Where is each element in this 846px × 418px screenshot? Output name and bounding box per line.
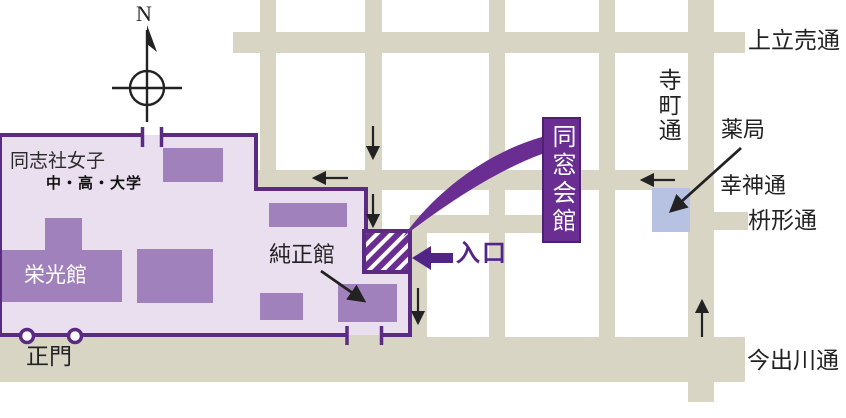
campus-name-label: 同志社女子 <box>10 152 105 172</box>
dousoukaikan-label: 同窓会館 <box>544 124 579 236</box>
street-teramachi-v <box>688 0 714 402</box>
street-v2 <box>365 0 382 233</box>
street-v1 <box>260 0 276 190</box>
building <box>163 148 223 182</box>
compass-n-label: N <box>136 2 152 25</box>
compass <box>112 25 182 122</box>
entrance-marker <box>364 231 410 272</box>
street-v4 <box>599 0 615 338</box>
street-label-teramachi: 寺町通 <box>655 68 679 143</box>
campus-access-map: 同窓会館 N 上立売通 寺町通 薬局 幸神通 枡形通 今出川通 同志社女子 中・… <box>0 0 846 418</box>
building <box>269 203 347 227</box>
pharmacy-label: 薬局 <box>721 118 765 141</box>
junseikan-pointer-arrow <box>321 271 364 301</box>
building-eikokan <box>45 218 82 252</box>
street-imadegawa-h <box>0 337 745 382</box>
street-label-masugata: 枡形通 <box>748 209 817 233</box>
building-junseikan <box>338 284 397 322</box>
compass-needle <box>147 25 157 52</box>
building <box>137 249 213 303</box>
junseikan-label: 純正館 <box>269 243 335 266</box>
north-gate <box>143 127 162 147</box>
street-v3 <box>489 0 505 338</box>
campus-subtitle-label: 中・高・大学 <box>46 176 142 192</box>
building <box>260 293 303 320</box>
dousoukaikan-banner: 同窓会館 <box>542 117 581 243</box>
pharmacy-block <box>652 188 690 232</box>
street-v2-lower <box>410 215 427 338</box>
eikokan-label: 栄光館 <box>24 264 87 286</box>
entrance-label: 入口 <box>456 241 508 266</box>
street-label-koujin: 幸神通 <box>720 174 786 197</box>
seimon-label: 正門 <box>26 345 72 369</box>
street-label-kamidachiuri: 上立売通 <box>748 29 840 53</box>
street-label-imadegawa: 今出川通 <box>747 349 839 373</box>
street-koujin-h <box>256 170 690 190</box>
